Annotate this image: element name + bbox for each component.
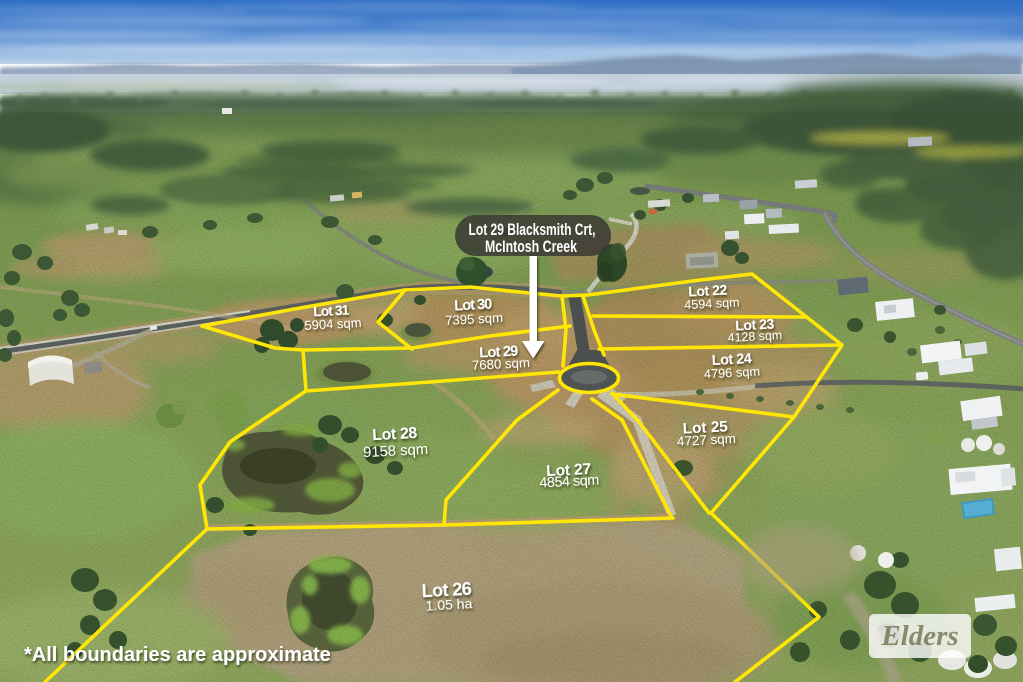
svg-text:Lot 29 Blacksmith Crt,: Lot 29 Blacksmith Crt, — [469, 221, 596, 239]
svg-text:4594 sqm: 4594 sqm — [684, 295, 740, 312]
svg-text:5904 sqm: 5904 sqm — [304, 315, 362, 333]
svg-text:4727 sqm: 4727 sqm — [677, 431, 737, 449]
svg-text:7395 sqm: 7395 sqm — [445, 310, 504, 328]
svg-text:4854 sqm: 4854 sqm — [539, 472, 600, 491]
svg-text:9158 sqm: 9158 sqm — [363, 442, 429, 461]
svg-text:McIntosh Creek: McIntosh Creek — [485, 238, 578, 256]
svg-text:*All boundaries are approximat: *All boundaries are approximate — [24, 644, 331, 666]
svg-text:7680 sqm: 7680 sqm — [472, 355, 531, 373]
svg-text:4128 sqm: 4128 sqm — [727, 328, 782, 345]
svg-text:Elders: Elders — [880, 620, 958, 652]
svg-text:Lot 28: Lot 28 — [372, 425, 418, 444]
svg-text:4796 sqm: 4796 sqm — [703, 364, 760, 382]
svg-text:1.05 ha: 1.05 ha — [425, 595, 473, 613]
